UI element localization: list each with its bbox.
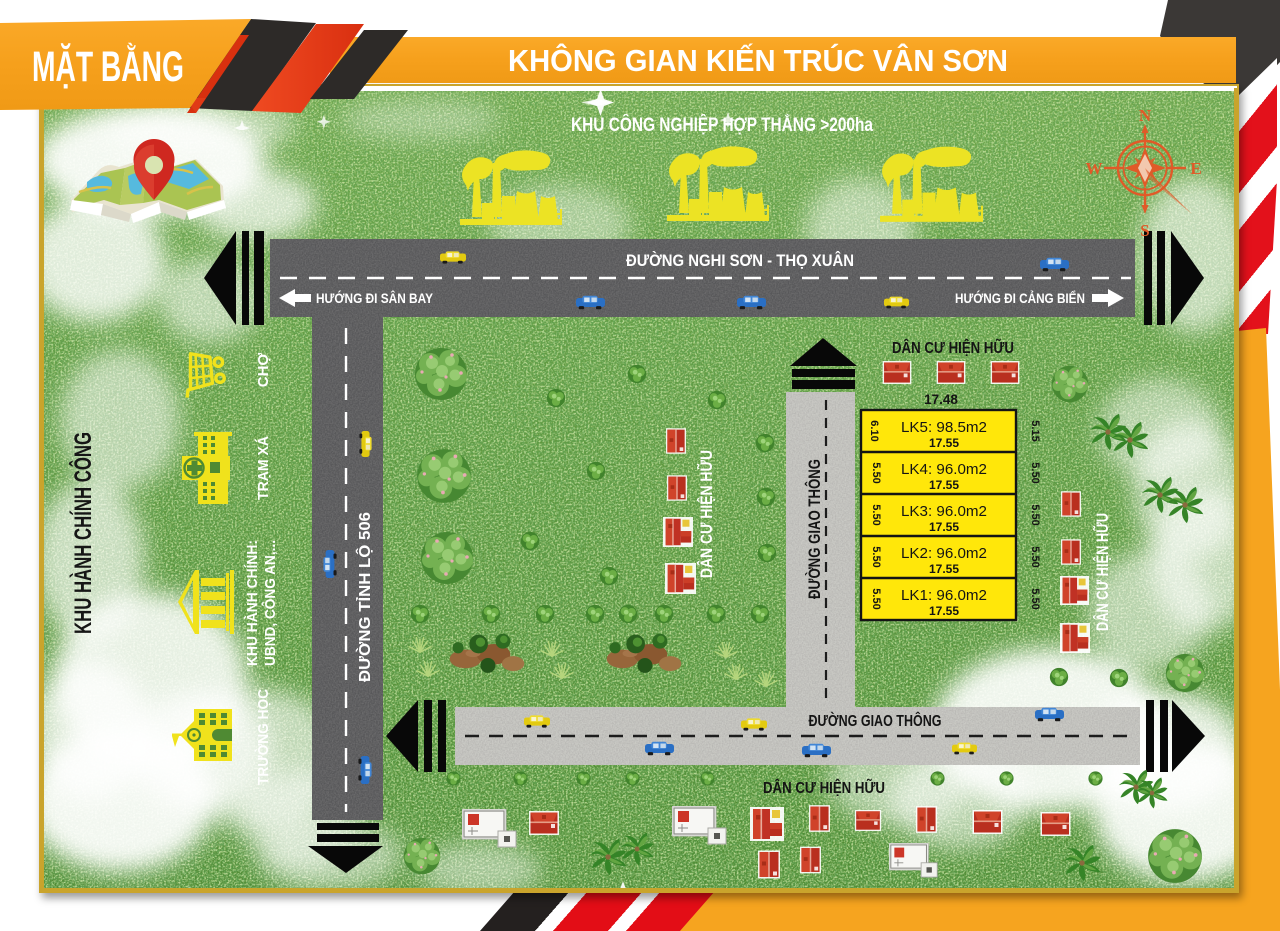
svg-text:5.50: 5.50	[1029, 504, 1041, 525]
svg-text:DÂN CƯ HIỆN HỮU: DÂN CƯ HIỆN HỮU	[1092, 513, 1112, 631]
svg-text:5.50: 5.50	[1029, 462, 1041, 483]
svg-text:CHỢ: CHỢ	[255, 353, 272, 388]
svg-text:6.10: 6.10	[868, 420, 880, 441]
svg-text:LK2: 96.0m2: LK2: 96.0m2	[901, 546, 987, 562]
svg-text:HƯỚNG ĐI SÂN BAY: HƯỚNG ĐI SÂN BAY	[316, 289, 434, 306]
svg-text:ĐƯỜNG TỈNH LỘ 506: ĐƯỜNG TỈNH LỘ 506	[355, 512, 374, 682]
svg-text:TRẠM XÁ: TRẠM XÁ	[255, 436, 272, 500]
svg-text:DÂN CƯ HIỆN HỮU: DÂN CƯ HIỆN HỮU	[696, 450, 716, 578]
svg-text:TRƯỜNG HỌC: TRƯỜNG HỌC	[254, 689, 272, 785]
svg-text:ĐƯỜNG GIAO THÔNG: ĐƯỜNG GIAO THÔNG	[805, 459, 824, 599]
svg-text:KHU HÀNH CHÍNH:: KHU HÀNH CHÍNH:	[244, 540, 261, 666]
svg-text:LK4: 96.0m2: LK4: 96.0m2	[901, 462, 987, 478]
svg-text:DÂN CƯ HIỆN HỮU: DÂN CƯ HIỆN HỮU	[763, 779, 885, 797]
svg-text:LK1: 96.0m2: LK1: 96.0m2	[901, 588, 987, 604]
svg-text:ĐƯỜNG GIAO THÔNG: ĐƯỜNG GIAO THÔNG	[809, 711, 942, 730]
svg-text:17.55: 17.55	[929, 478, 959, 492]
svg-text:UBND, CÔNG AN,...: UBND, CÔNG AN,...	[261, 540, 279, 666]
svg-text:17.55: 17.55	[929, 520, 959, 534]
svg-text:LK3: 96.0m2: LK3: 96.0m2	[901, 504, 987, 520]
svg-text:HƯỚNG ĐI CẢNG BIỂN: HƯỚNG ĐI CẢNG BIỂN	[955, 289, 1085, 306]
svg-text:5.50: 5.50	[870, 588, 882, 609]
svg-text:MẶT BẰNG: MẶT BẰNG	[32, 43, 184, 91]
svg-text:ĐƯỜNG NGHI SƠN - THỌ XUÂN: ĐƯỜNG NGHI SƠN - THỌ XUÂN	[626, 251, 854, 270]
svg-text:5.50: 5.50	[1029, 588, 1041, 609]
svg-text:LK5: 98.5m2: LK5: 98.5m2	[901, 420, 987, 436]
svg-text:DÂN CƯ HIỆN HỮU: DÂN CƯ HIỆN HỮU	[892, 339, 1014, 357]
svg-text:5.50: 5.50	[870, 462, 882, 483]
svg-text:17.55: 17.55	[929, 436, 959, 450]
svg-text:KHÔNG GIAN KIẾN TRÚC VÂN SƠN: KHÔNG GIAN KIẾN TRÚC VÂN SƠN	[508, 42, 1008, 78]
svg-text:KHU HÀNH CHÍNH CÔNG: KHU HÀNH CHÍNH CÔNG	[69, 432, 97, 634]
svg-text:17.48: 17.48	[924, 392, 958, 407]
svg-text:17.55: 17.55	[929, 562, 959, 576]
svg-text:5.15: 5.15	[1029, 420, 1041, 441]
svg-text:5.50: 5.50	[870, 546, 882, 567]
svg-text:17.55: 17.55	[929, 604, 959, 618]
svg-text:5.50: 5.50	[1029, 546, 1041, 567]
svg-text:5.50: 5.50	[870, 504, 882, 525]
